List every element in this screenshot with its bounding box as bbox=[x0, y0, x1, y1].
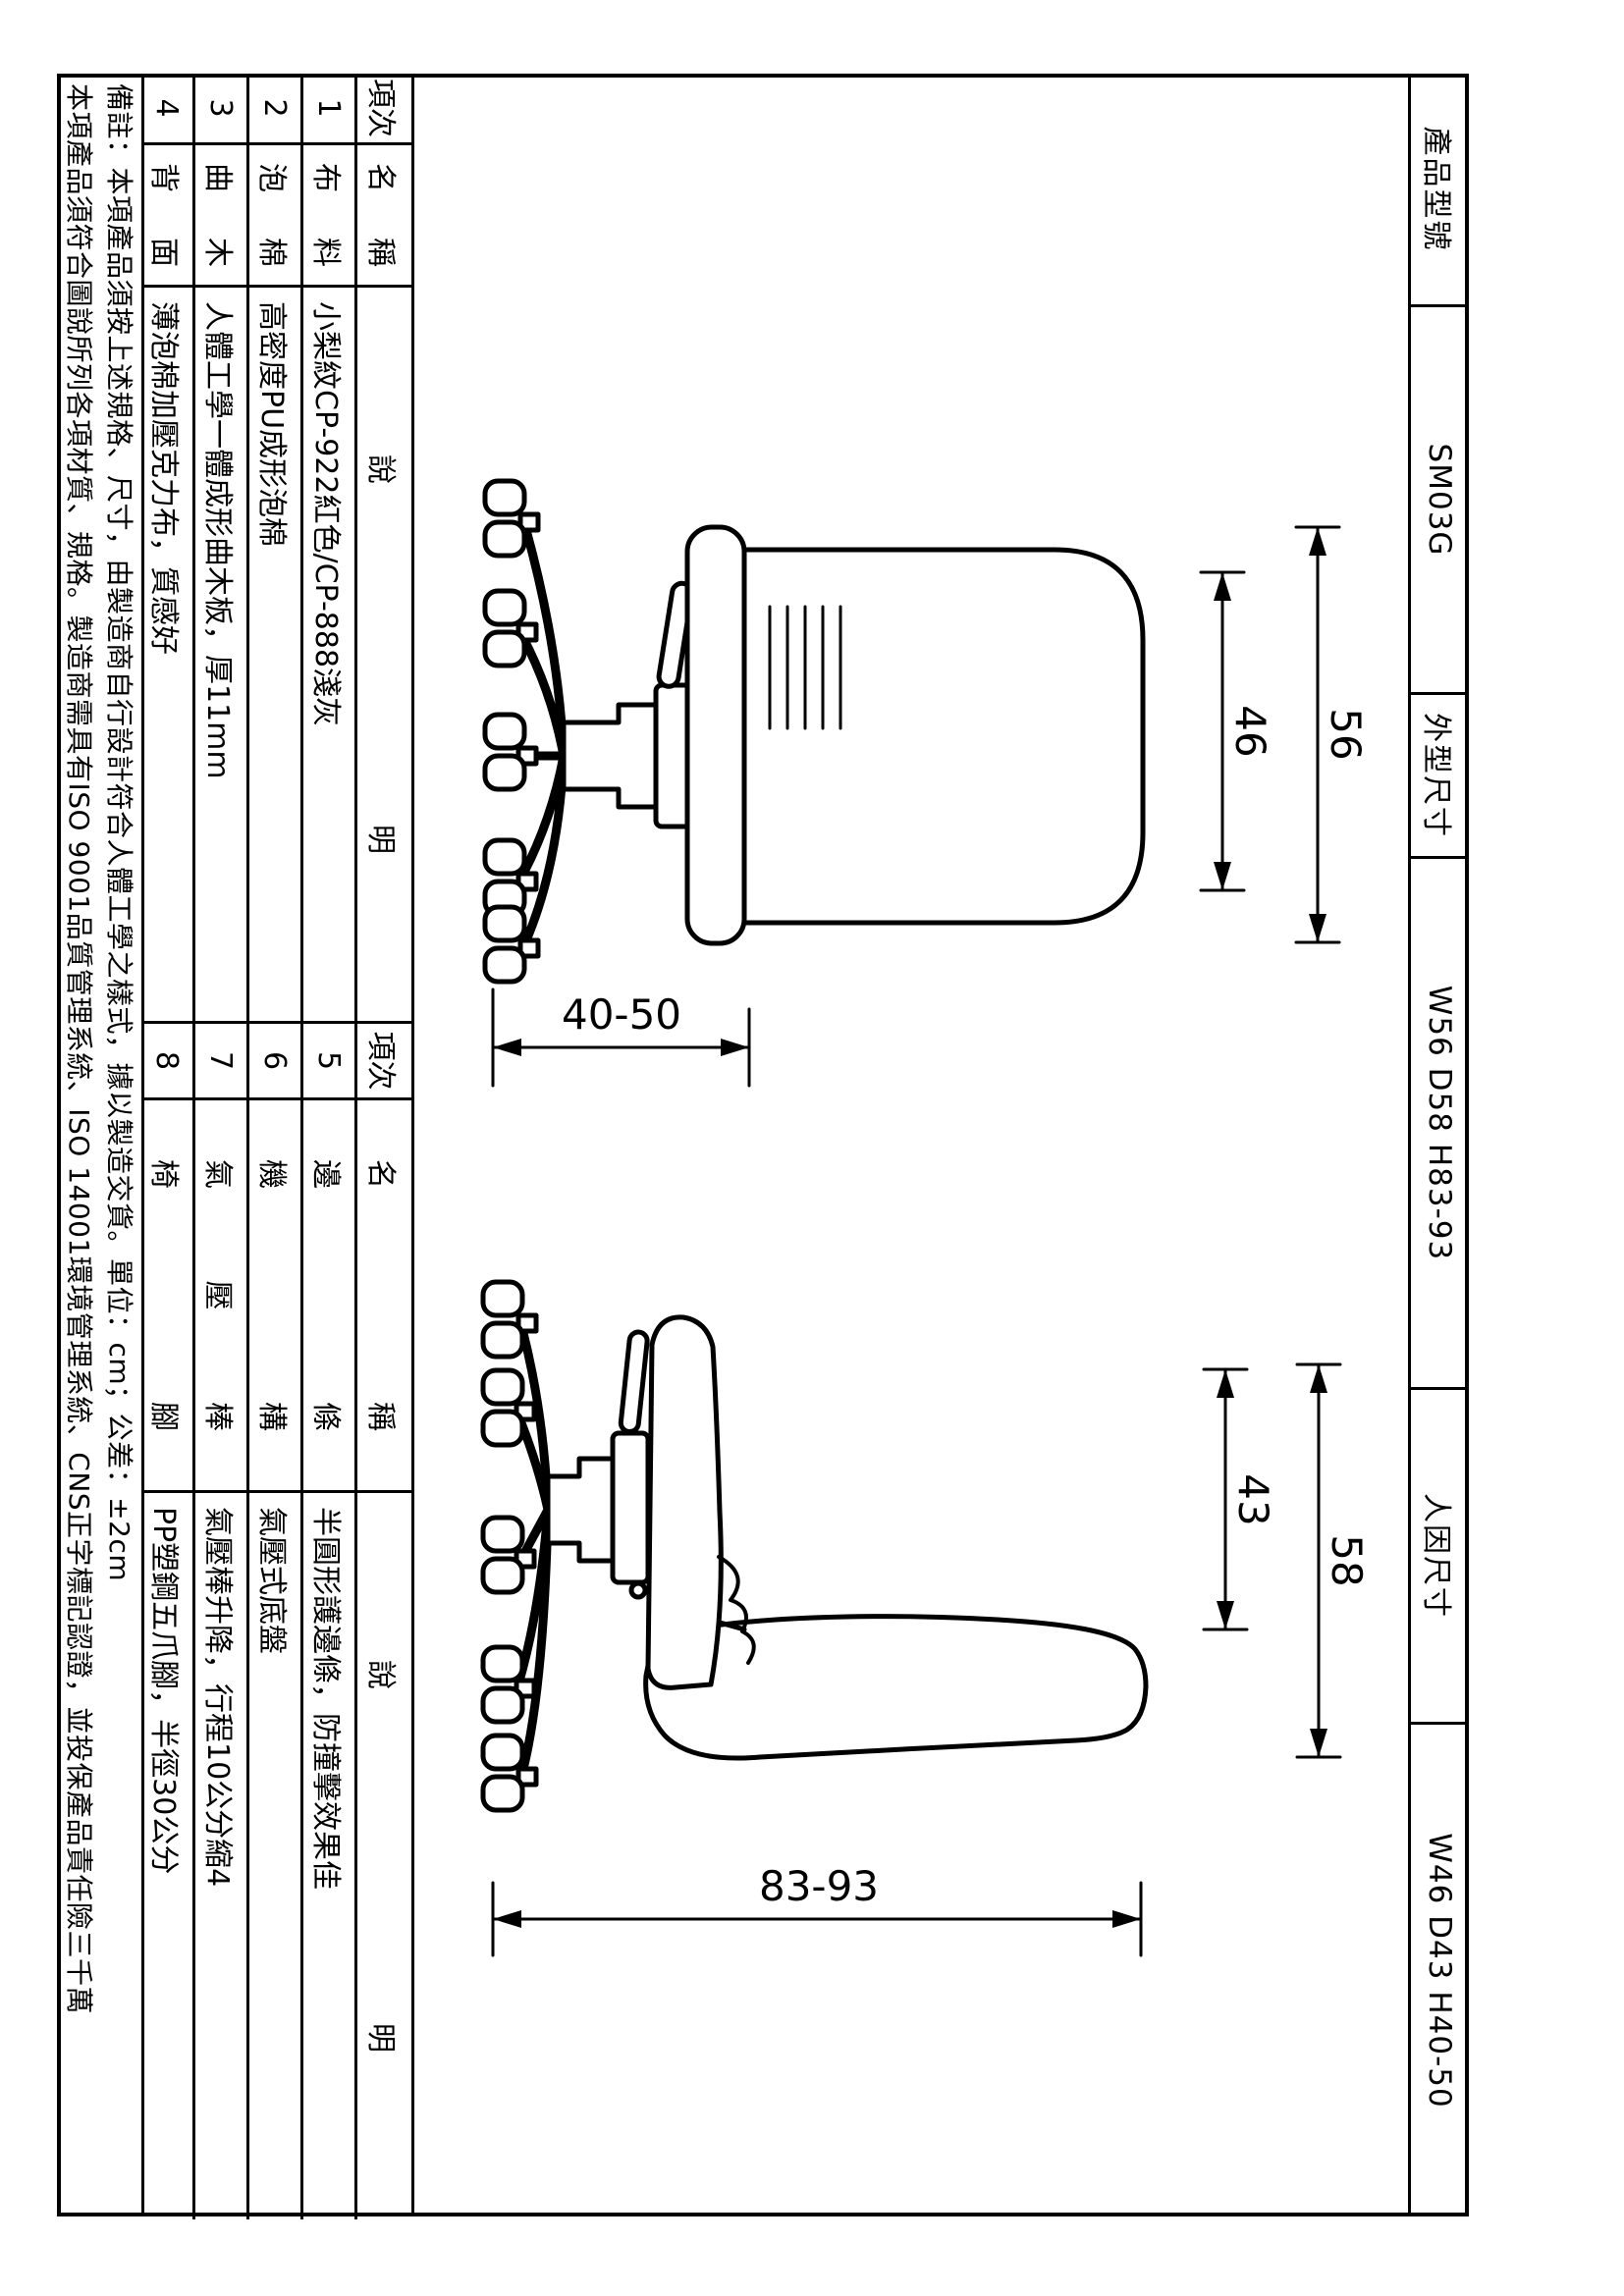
col-header-no: 項次 bbox=[357, 74, 411, 142]
item-no: 7 bbox=[195, 1024, 249, 1097]
rotated-landscape-sheet: 產品型號 SM03G 外型尺寸 W56 D58 H83-93 人因尺寸 W46 … bbox=[0, 0, 1624, 2296]
spec-sheet-page: 產品型號 SM03G 外型尺寸 W56 D58 H83-93 人因尺寸 W46 … bbox=[0, 0, 1624, 2296]
item-desc: 氣壓式底盤 bbox=[249, 1490, 303, 2219]
caster-wheels-side-view bbox=[483, 1282, 522, 1810]
caster-wheels-front-view bbox=[485, 481, 524, 982]
item-no: 6 bbox=[249, 1024, 303, 1097]
remark-line-1: 備註：本項產品須按上述規格、尺寸，由製造商自行設計符合人體工學之樣式，據以製造交… bbox=[100, 83, 139, 2216]
dim-label-side-seat-depth: 43 bbox=[1229, 1473, 1277, 1525]
item-desc: 人體工學一體成形曲木板，厚11mm bbox=[195, 285, 249, 1021]
item-no: 2 bbox=[249, 74, 303, 142]
item-no: 5 bbox=[303, 1024, 357, 1097]
item-no: 8 bbox=[141, 1024, 195, 1097]
dim-label-front-seat-width: 46 bbox=[1226, 705, 1274, 757]
dim-label-front-seat-height: 40-50 bbox=[562, 990, 681, 1039]
col-header-desc: 說明 bbox=[357, 285, 411, 1021]
item-desc: 小梨紋CP-922紅色/CP-888淺灰 bbox=[303, 285, 357, 1021]
item-name: 機構 bbox=[249, 1097, 303, 1490]
item-name: 泡棉 bbox=[249, 142, 303, 285]
item-name: 氣壓棒 bbox=[195, 1097, 249, 1490]
spec-tables: 項次 名稱 說明 1 布料 小梨紋CP-922紅色/CP-888淺灰 2 泡棉 … bbox=[144, 74, 414, 2216]
item-no: 4 bbox=[141, 74, 195, 142]
col-header-name: 名稱 bbox=[357, 142, 411, 285]
item-name: 椅腳 bbox=[141, 1097, 195, 1490]
col-header-name: 名稱 bbox=[357, 1097, 411, 1490]
item-desc: 半圓形護邊條，防撞擊效果佳 bbox=[303, 1490, 357, 2219]
chair-front-view-drawing bbox=[485, 481, 1143, 982]
item-desc: 高密度PU成形泡棉 bbox=[249, 285, 303, 1021]
item-desc: 薄泡棉加壓克力布，質感好 bbox=[141, 285, 195, 1021]
item-desc: 氣壓棒升降，行程10公分縮4 bbox=[195, 1490, 249, 2219]
item-desc: PP塑鋼五爪腳，半徑30公分 bbox=[141, 1490, 195, 2219]
remarks-block: 備註：本項產品須按上述規格、尺寸，由製造商自行設計符合人體工學之樣式，據以製造交… bbox=[57, 74, 144, 2216]
remark-line-2: 本項產品須符合圖說所列各項材質、規格。製造商需具有ISO 9001品質管理系統、… bbox=[60, 83, 99, 2216]
dim-label-side-overall-depth: 58 bbox=[1323, 1534, 1371, 1586]
item-name: 曲木 bbox=[195, 142, 249, 285]
dim-label-front-overall-width: 56 bbox=[1322, 708, 1370, 760]
item-name: 邊條 bbox=[303, 1097, 357, 1490]
item-no: 1 bbox=[303, 74, 357, 142]
col-header-no: 項次 bbox=[357, 1024, 411, 1097]
item-no: 3 bbox=[195, 74, 249, 142]
spec-table-items-5-8: 項次 名稱 說明 5 邊條 半圓形護邊條，防撞擊效果佳 6 機構 氣壓式底盤 7… bbox=[144, 1021, 411, 2219]
dim-label-side-overall-height: 83-93 bbox=[759, 1862, 879, 1910]
item-name: 背面 bbox=[141, 142, 195, 285]
spec-table-items-1-4: 項次 名稱 說明 1 布料 小梨紋CP-922紅色/CP-888淺灰 2 泡棉 … bbox=[144, 74, 411, 1021]
col-header-desc: 說明 bbox=[357, 1490, 411, 2219]
chair-side-view-drawing bbox=[483, 1282, 1146, 1810]
item-name: 布料 bbox=[303, 142, 357, 285]
